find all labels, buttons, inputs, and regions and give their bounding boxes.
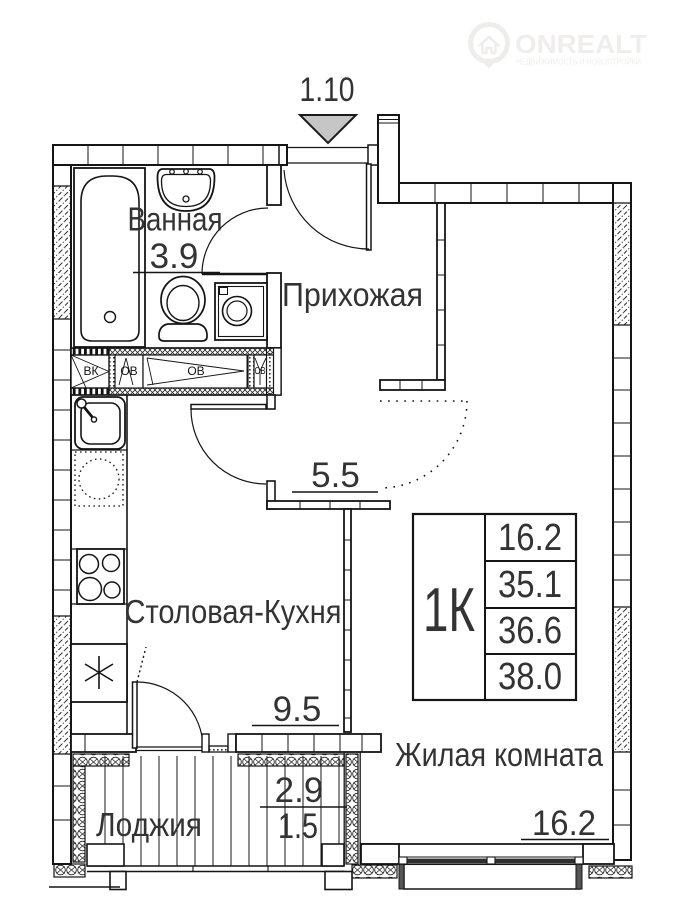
svg-text:16.2: 16.2: [498, 517, 562, 559]
svg-text:35.1: 35.1: [498, 564, 562, 606]
svg-text:НЕДВИЖИМОСТЬ И НОВОСТРОЙКИ: НЕДВИЖИМОСТЬ И НОВОСТРОЙКИ: [516, 58, 641, 67]
svg-text:38.0: 38.0: [498, 656, 562, 698]
svg-text:1К: 1К: [423, 576, 475, 645]
svg-text:16.2: 16.2: [532, 804, 596, 843]
svg-text:2.9: 2.9: [275, 771, 324, 810]
svg-text:ОВ: ОВ: [255, 365, 266, 377]
svg-text:Ванная: Ванная: [128, 201, 223, 238]
svg-text:ONREALT: ONREALT: [515, 29, 647, 59]
svg-text:Лоджия: Лоджия: [96, 806, 202, 843]
svg-text:Прихожая: Прихожая: [282, 276, 423, 313]
svg-text:ОВ: ОВ: [120, 364, 137, 378]
svg-text:5.5: 5.5: [311, 456, 360, 495]
svg-text:ОВ: ОВ: [187, 364, 204, 378]
svg-text:Жилая комната: Жилая комната: [395, 736, 604, 773]
svg-text:1.10: 1.10: [300, 71, 355, 109]
svg-text:1.5: 1.5: [278, 807, 318, 846]
svg-text:Столовая-Кухня: Столовая-Кухня: [125, 593, 342, 630]
svg-text:3.9: 3.9: [150, 237, 199, 276]
svg-text:ВК: ВК: [84, 364, 99, 378]
svg-text:9.5: 9.5: [273, 690, 322, 729]
svg-text:36.6: 36.6: [498, 610, 562, 652]
